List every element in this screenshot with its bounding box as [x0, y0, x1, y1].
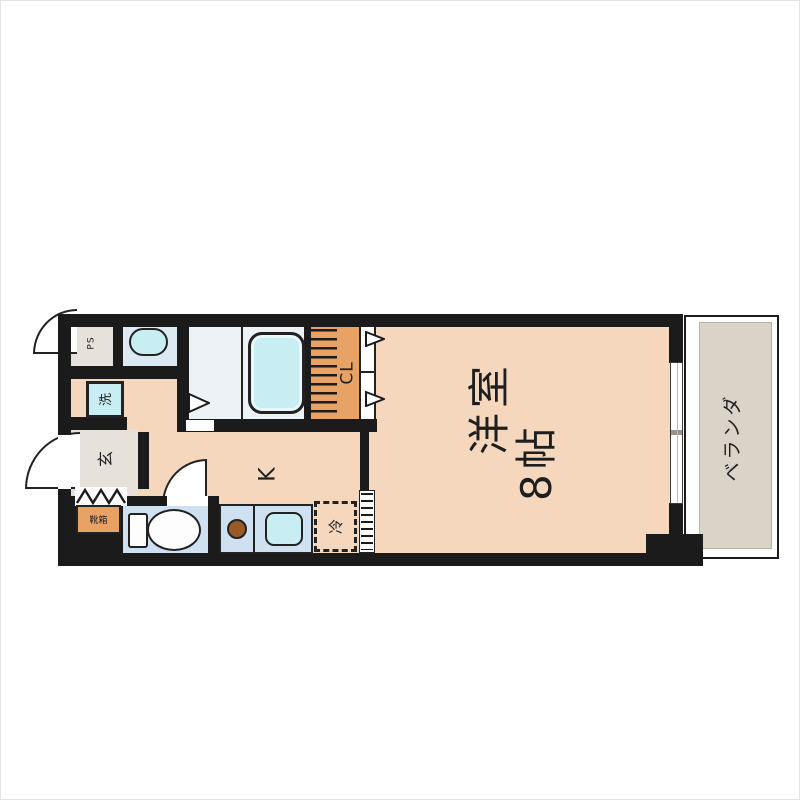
sliding-door-k-room — [359, 490, 375, 553]
wall-cl-left — [304, 327, 311, 419]
wall-bottom — [58, 553, 683, 566]
wall-nook-bath — [177, 314, 189, 432]
closet-door-arrow-bottom-icon — [365, 391, 385, 407]
kitchen-sink-icon — [265, 512, 303, 546]
fridge-label: 冷 — [325, 519, 346, 534]
closet-shelf-hatch — [311, 329, 337, 417]
washbasin-icon — [129, 328, 168, 356]
main-room-size: 8帖 — [513, 361, 560, 501]
main-room-name: 洋室 — [466, 361, 513, 501]
shoe-box: 靴箱 — [76, 505, 121, 534]
entrance-door-arc — [25, 432, 80, 489]
closet-door-arrow-top-icon — [365, 331, 385, 347]
wall-ps-nook — [113, 319, 123, 366]
toilet-room — [123, 506, 208, 554]
washing-machine: 洗 — [86, 381, 124, 418]
veranda-label: ベランダ — [686, 317, 777, 557]
wall-toilet-counter — [208, 496, 219, 566]
main-room-label: 洋室 8帖 — [431, 346, 596, 516]
bath-partition-line — [241, 327, 243, 419]
kitchen-counter — [219, 504, 313, 554]
wall-top — [58, 314, 683, 327]
wall-under-washer — [71, 417, 127, 430]
bath-door-arrow-icon — [188, 393, 210, 413]
genkan-label: 玄 — [92, 451, 116, 467]
toilet-tank-icon — [128, 513, 148, 548]
genkan-step-zigzag-icon — [75, 487, 127, 506]
wall-kitchen-room — [360, 432, 369, 490]
counter-divider — [253, 506, 255, 552]
entrance-door-gap — [58, 435, 71, 489]
wall-below-nook — [58, 366, 183, 379]
genkan-step-strip — [75, 487, 127, 506]
floorplan-canvas: ベランダ PS CL — [0, 0, 800, 800]
bathtub-icon — [248, 332, 305, 414]
pipe-space-label: PS — [87, 336, 97, 349]
toilet-bowl-icon — [147, 509, 201, 551]
toilet-door-gap — [167, 496, 208, 506]
veranda-window — [670, 362, 683, 504]
kitchen-label: K — [244, 450, 292, 498]
wall-left-lower — [58, 489, 71, 566]
wall-right-upper — [669, 314, 683, 363]
wall-corner-chunk — [646, 534, 703, 566]
closet-label: CL — [338, 361, 358, 384]
burner-icon — [227, 519, 247, 539]
closet: CL — [311, 327, 359, 419]
shoe-box-label: 靴箱 — [89, 513, 107, 526]
veranda: ベランダ — [684, 315, 779, 559]
washer-label: 洗 — [95, 393, 114, 406]
fridge-space: 冷 — [314, 501, 357, 552]
bath-door-gap — [186, 420, 214, 431]
wall-genkan-step — [138, 432, 149, 489]
